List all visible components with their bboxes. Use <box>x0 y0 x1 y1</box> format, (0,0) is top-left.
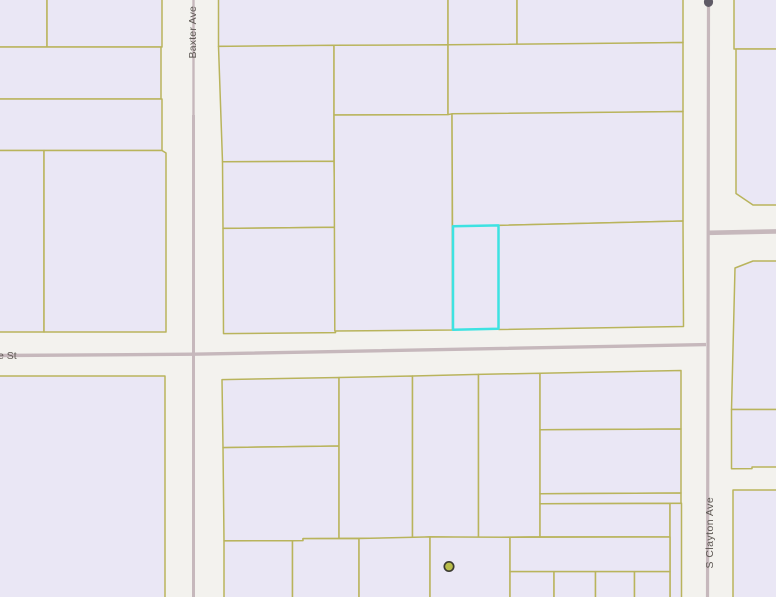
svg-text:e St: e St <box>0 350 17 362</box>
svg-text:S Clayton Ave: S Clayton Ave <box>704 497 716 569</box>
svg-text:Baxter Ave: Baxter Ave <box>187 6 199 59</box>
